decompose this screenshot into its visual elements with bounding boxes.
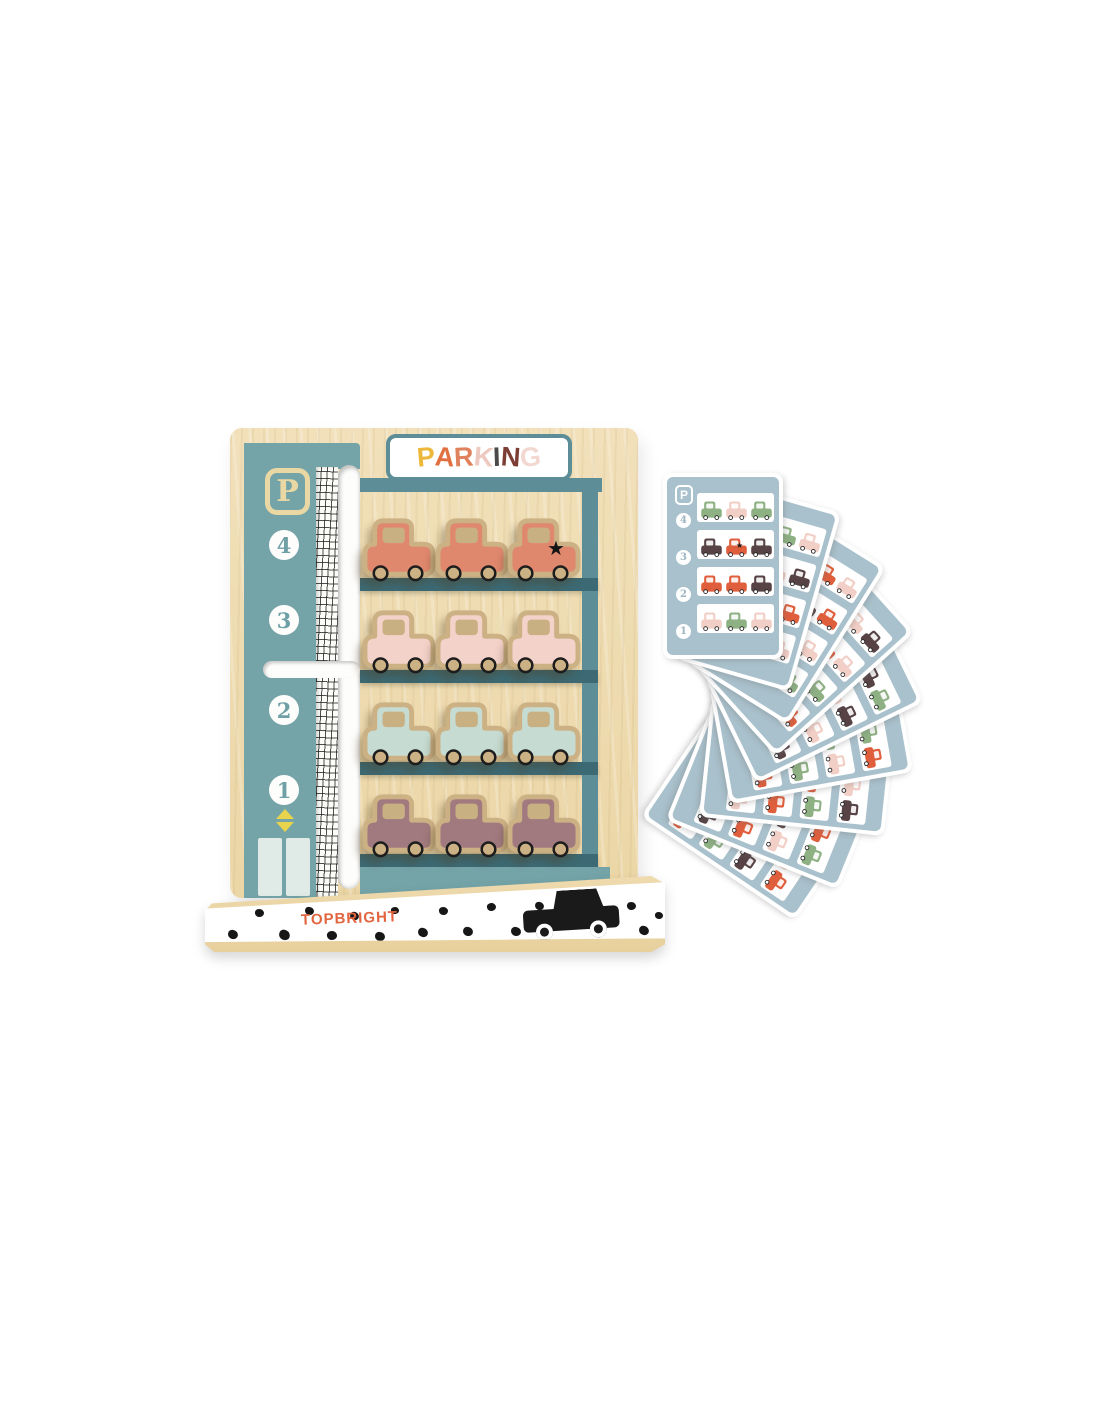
card-car-icon bbox=[700, 537, 723, 557]
base-dot bbox=[227, 929, 238, 940]
card-floor-label-2: 2 bbox=[676, 587, 691, 602]
card-car-shape bbox=[861, 744, 885, 770]
card-floor-label-3: 3 bbox=[676, 550, 691, 565]
card-car-shape bbox=[750, 500, 773, 520]
card-car-shape bbox=[700, 500, 723, 520]
card-car-shape bbox=[825, 750, 849, 776]
card-car-shape bbox=[700, 611, 723, 631]
card-car-icon: ★ bbox=[725, 537, 748, 557]
base-dot bbox=[278, 928, 292, 941]
black-car-wheel bbox=[589, 920, 607, 938]
card-car-icon bbox=[725, 611, 748, 631]
card-car-icon bbox=[750, 500, 773, 520]
base-dot bbox=[254, 908, 264, 917]
star-icon: ★ bbox=[736, 541, 743, 550]
card-car-shape bbox=[725, 574, 748, 594]
base-dot bbox=[375, 932, 386, 942]
card-car-icon bbox=[786, 565, 814, 591]
card-car-shape bbox=[725, 611, 748, 631]
card-car-icon bbox=[750, 611, 773, 631]
card-car-shape bbox=[700, 537, 723, 557]
base-dot bbox=[462, 926, 473, 936]
card-car-shape bbox=[797, 530, 825, 556]
base-dot bbox=[486, 902, 497, 912]
card-car-icon bbox=[838, 798, 860, 823]
black-car-graphic bbox=[522, 887, 621, 943]
card-car-icon bbox=[750, 574, 773, 594]
card-floor-label-4: 4 bbox=[676, 513, 691, 528]
card-car-shape bbox=[700, 574, 723, 594]
black-car-wheel bbox=[535, 923, 553, 941]
card-car-shape bbox=[750, 537, 773, 557]
card-car-shape bbox=[764, 828, 791, 857]
brand-logo: TOPBRIGHT bbox=[301, 908, 399, 928]
base-dot bbox=[511, 927, 522, 937]
card-car-icon bbox=[725, 574, 748, 594]
card-parking-row: ★ bbox=[697, 530, 774, 559]
base-wedge: TOPBRIGHT bbox=[205, 876, 665, 952]
base-dot bbox=[626, 901, 636, 910]
card-car-shape bbox=[838, 798, 860, 823]
base-dot bbox=[417, 927, 429, 938]
card-car-icon bbox=[700, 574, 723, 594]
base-dot bbox=[439, 907, 449, 916]
card-car-shape bbox=[801, 795, 823, 820]
card-car-icon bbox=[700, 611, 723, 631]
base-dot bbox=[326, 930, 338, 941]
pattern-card-1: P4321★ bbox=[663, 473, 783, 659]
card-car-icon bbox=[725, 500, 748, 520]
product-photo-stage: P 4321 PARKING ★ P4321★P4321P4321P4321★P… bbox=[0, 0, 1100, 1422]
card-car-shape bbox=[798, 842, 825, 871]
card-floor-label-1: 1 bbox=[676, 624, 691, 639]
card-car-icon bbox=[700, 500, 723, 520]
pattern-card-panel: P4321★ bbox=[667, 477, 779, 655]
base-dot bbox=[655, 912, 663, 919]
card-car-icon bbox=[798, 842, 825, 871]
card-car-shape bbox=[725, 500, 748, 520]
card-car-icon bbox=[825, 750, 849, 776]
card-car-icon bbox=[797, 530, 825, 556]
base-dot bbox=[638, 925, 650, 936]
card-parking-row bbox=[697, 604, 774, 633]
card-car-icon bbox=[750, 537, 773, 557]
card-car-shape bbox=[786, 565, 814, 591]
card-parking-symbol-badge: P bbox=[675, 485, 693, 505]
card-car-shape bbox=[750, 611, 773, 631]
card-parking-row bbox=[697, 493, 774, 522]
pattern-cards-fan: P4321★P4321P4321P4321★P4321P4321P4321P43… bbox=[0, 0, 1100, 1422]
card-car-icon bbox=[861, 744, 885, 770]
card-parking-row bbox=[697, 567, 774, 596]
card-car-icon bbox=[764, 828, 791, 857]
card-car-icon bbox=[801, 795, 823, 820]
card-car-shape bbox=[750, 574, 773, 594]
